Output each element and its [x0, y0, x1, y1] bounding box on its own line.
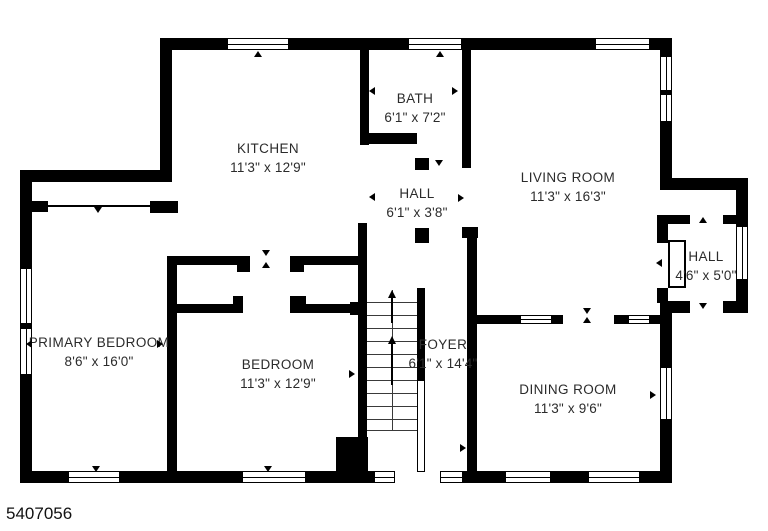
bedroom-measure-arrow	[349, 370, 355, 378]
window-foyer-right	[440, 471, 463, 483]
bath-measure-arrow-left	[369, 87, 375, 95]
room-dims: 6'1" x 14'4"	[383, 354, 503, 373]
wall-bath-bottom	[360, 133, 417, 144]
bedroom-window-arrow	[264, 466, 272, 472]
room-label-foyer: FOYER 6'1" x 14'4"	[383, 335, 503, 373]
closet-bifold-arrow-2	[262, 262, 270, 268]
room-label-bedroom: BEDROOM 11'3" x 12'9"	[198, 355, 358, 393]
wall-kitchen-left	[160, 38, 172, 170]
wall-livdin-b	[552, 315, 563, 324]
wall-closetL-stub-bottom	[233, 296, 243, 313]
primary-measure-arrow-right	[157, 340, 163, 348]
kitchen-window-arrow	[254, 51, 262, 57]
window-primary-bottom	[68, 471, 120, 483]
window-living-right-1	[660, 56, 672, 91]
room-name: HALL	[646, 247, 766, 266]
wall-closetL-stub-top	[237, 256, 250, 272]
living-foyer-door-arrow	[471, 260, 477, 268]
stair-rail	[417, 380, 425, 472]
room-dims: 4'6" x 5'0"	[646, 266, 766, 285]
wall-righthall-top	[660, 178, 748, 190]
room-name: DINING ROOM	[488, 380, 648, 399]
wall-closetL-bottom	[167, 304, 243, 313]
window-primary-left-1	[20, 268, 32, 324]
dining-measure-arrow	[650, 391, 656, 399]
room-name: KITCHEN	[188, 139, 348, 158]
wall-primary-closet-stub-right	[150, 201, 178, 213]
wall-livinghall-a	[657, 215, 668, 243]
room-label-primary-bedroom: PRIMARY BEDROOM 8'6" x 16'0"	[19, 333, 179, 371]
window-bath-top	[408, 38, 462, 50]
room-dims: 8'6" x 16'0"	[19, 352, 179, 371]
hall-measure-arrow-left	[369, 193, 375, 201]
room-dims: 11'3" x 12'9"	[198, 374, 358, 393]
room-dims: 11'3" x 12'9"	[188, 158, 348, 177]
room-name: PRIMARY BEDROOM	[19, 333, 179, 352]
wall-righthall-bottom-b	[723, 301, 748, 313]
wall-livdin-d	[650, 315, 672, 324]
wall-closetR-stub-top	[290, 256, 304, 272]
room-label-living-room: LIVING ROOM 11'3" x 16'3"	[488, 168, 648, 206]
bath-door-arrow	[435, 160, 443, 166]
room-dims: 11'3" x 16'3"	[488, 187, 648, 206]
window-livdin-pass-2	[628, 315, 650, 324]
room-dims: 6'1" x 3'8"	[357, 203, 477, 222]
room-label-hall-right: HALL 4'6" x 5'0"	[646, 247, 766, 285]
primary-measure-arrow-left	[26, 340, 32, 348]
window-livdin-pass-1	[520, 315, 552, 324]
wall-closetR-stub-bottom	[290, 296, 306, 313]
window-living-right-2	[660, 94, 672, 122]
window-kitchen-top	[227, 38, 289, 50]
stairs-up-arrow-1	[391, 297, 393, 323]
wall-livinghall-b	[657, 288, 668, 303]
primary-window-arrow	[92, 466, 100, 472]
window-living-top	[595, 38, 650, 50]
side-door-swing-arrow	[656, 259, 662, 267]
window-dining-bottom-2	[588, 471, 640, 483]
closet-bifold-arrow-1	[262, 250, 270, 256]
room-name: FOYER	[383, 335, 503, 354]
window-foyer-left	[374, 471, 395, 483]
foyer-door-arrow	[460, 444, 466, 452]
room-name: BEDROOM	[198, 355, 358, 374]
wall-righthall-inner-b	[723, 215, 748, 224]
room-label-hall-center: HALL 6'1" x 3'8"	[357, 184, 477, 222]
room-label-dining-room: DINING ROOM 11'3" x 9'6"	[488, 380, 648, 418]
window-bedroom-bottom	[242, 471, 306, 483]
bath-measure-arrow-right	[452, 87, 458, 95]
wall-leftwing-top	[20, 170, 172, 182]
room-name: LIVING ROOM	[488, 168, 648, 187]
wall-left	[20, 170, 32, 483]
bath-window-arrow	[436, 51, 444, 57]
primary-closet-arrow	[94, 207, 102, 213]
chimney-block	[336, 437, 368, 473]
floor-plan: KITCHEN 11'3" x 12'9" BATH 6'1" x 7'2" H…	[0, 0, 768, 531]
window-dining-right	[660, 367, 672, 420]
window-dining-bottom-1	[505, 471, 551, 483]
righthall-bottom-opening-arrow	[699, 303, 707, 309]
wall-livdin-c	[614, 315, 628, 324]
listing-id: 5407056	[6, 504, 72, 524]
hall-door-arrow	[458, 194, 464, 202]
righthall-top-opening-arrow	[699, 217, 707, 223]
livdin-opening-arrow-1	[583, 308, 591, 314]
wall-hall-stub-top	[415, 158, 429, 170]
room-label-kitchen: KITCHEN 11'3" x 12'9"	[188, 139, 348, 177]
room-dims: 6'1" x 7'2"	[355, 108, 475, 127]
wall-livdin-a	[472, 315, 520, 324]
room-dims: 11'3" x 9'6"	[488, 399, 648, 418]
wall-hallliving-stub	[462, 227, 478, 238]
wall-righthall-inner-a	[668, 215, 690, 224]
wall-hall-stub-bottom	[415, 228, 429, 243]
livdin-opening-arrow-2	[583, 317, 591, 323]
stairs-up-arrow-2	[391, 343, 393, 385]
